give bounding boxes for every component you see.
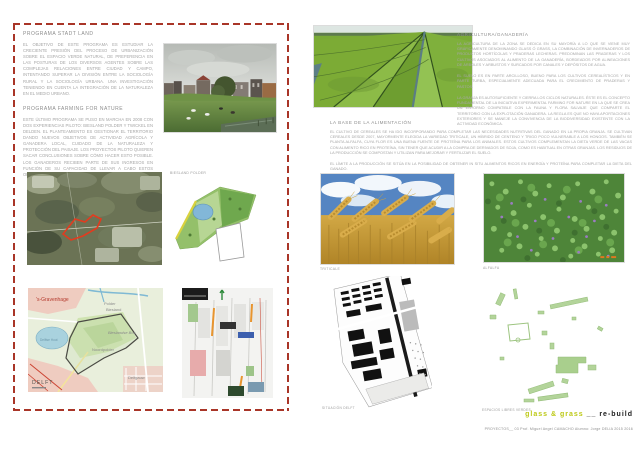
green-space-shapes xyxy=(490,289,603,402)
map-scale-bar xyxy=(32,387,46,388)
project-title-secondary: re-build xyxy=(599,411,633,418)
frame-bottom-dashed-line xyxy=(13,409,289,411)
section-heading-stadt-land: PROGRAMA STADT LAND xyxy=(23,31,153,37)
plan-pink-zone xyxy=(190,350,206,376)
delft-figure-ground-plan xyxy=(328,276,432,410)
polder-aerial-photo xyxy=(313,25,473,108)
city-meadow-photo xyxy=(163,43,277,133)
plan-photo-thumb-1 xyxy=(182,288,208,300)
map-label-biesland: Biesland xyxy=(106,307,121,312)
alimentacion-paragraph-2: EL LÍMITE A LA PRODUCCIÓN SE SITÚA EN LA… xyxy=(330,162,632,172)
presentation-board: PROGRAMA STADT LAND EL OBJETIVO DE ESTE … xyxy=(0,0,640,452)
project-title-primary: glass & grass xyxy=(525,411,584,418)
map-label-noordpolder: Noordpolder xyxy=(92,347,115,352)
map-label-delfgauw: Delfgauw xyxy=(128,375,145,380)
plan-photo-thumb-3 xyxy=(248,382,264,392)
map-label-delftse-hout: Delftse Hout xyxy=(40,338,58,342)
agricultura-paragraph-2: EL SUELO ES EN PARTE ARCILLOSO, BUENO PA… xyxy=(457,74,630,90)
section-heading-agricultura: AGRICULTURA/GANADERÍA xyxy=(457,32,630,37)
alfalfa-caption: ALFALFA xyxy=(483,266,499,270)
plan-photo-thumb-2 xyxy=(228,386,244,396)
plan-dark-tag xyxy=(220,322,236,329)
section-body-stadt-land: EL OBJETIVO DE ESTE PROGRAMA ES ESTUDIAR… xyxy=(23,42,153,97)
right-text-column: AGRICULTURA/GANADERÍA LA AGRICULTURA DE … xyxy=(457,32,630,133)
plan-lake xyxy=(193,204,213,220)
plan-annex-outline xyxy=(216,223,244,261)
section-body-farming-for-nature: ESTE ÚLTIMO PROGRAMA SE PUSO EN MARCHA E… xyxy=(23,117,153,178)
date-stamp-marks xyxy=(600,256,616,258)
map-label-bieslandse-bos: Bieslandse Bos xyxy=(108,330,136,335)
map-label-gravenhage: 's-Gravenhage xyxy=(36,297,69,303)
plan-blue-tag xyxy=(238,332,254,338)
alfalfa-photo xyxy=(483,173,625,263)
section-heading-farming-for-nature: PROGRAMA FARMING FOR NATURE xyxy=(23,106,153,112)
project-title-separator: __ xyxy=(587,411,597,418)
triticale-caption: TRITICALE xyxy=(320,267,340,271)
situacion-delft-caption: SITUACIÓN DELFT xyxy=(322,406,355,410)
biesland-polder-plan xyxy=(170,179,263,265)
alimentacion-paragraph-1: EL CULTIVO DE CEREALES SE HA IDO INCORPO… xyxy=(330,130,632,156)
map-label-polder: Polder xyxy=(104,301,116,306)
espacios-libres-caption: ESPACIOS LIBRES VERDES xyxy=(482,408,531,412)
triticale-photo xyxy=(320,173,455,265)
frame-left-dashed-line xyxy=(13,23,15,411)
satellite-map xyxy=(27,172,162,265)
plan-green-patch xyxy=(188,304,198,322)
left-text-column: PROGRAMA STADT LAND EL OBJETIVO DE ESTE … xyxy=(23,31,153,187)
map-label-delft: DELFT xyxy=(32,380,53,386)
agricultura-paragraph-1: LA AGRICULTURA DE LA ZONA SE DEDICA EN S… xyxy=(457,42,630,68)
project-title: glass & grass __ re-build xyxy=(525,411,633,418)
biesland-plan-label: BIESLAND POLDER xyxy=(170,171,206,175)
credits-line: PROYECTOS__ 03 Prof. Miguel Angel CAMACH… xyxy=(485,427,633,431)
alimentacion-section: LA BASE DE LA ALIMENTACIÓN EL CULTIVO DE… xyxy=(330,120,632,179)
frame-top-dashed-line xyxy=(13,23,289,25)
street-map: 's-Gravenhage Polder Biesland Bieslandse… xyxy=(28,288,163,392)
green-spaces-diagram xyxy=(480,287,615,407)
frame-right-dashed-line xyxy=(287,23,289,411)
section-heading-alimentacion: LA BASE DE LA ALIMENTACIÓN xyxy=(330,120,632,125)
annotated-site-plan xyxy=(182,288,273,398)
